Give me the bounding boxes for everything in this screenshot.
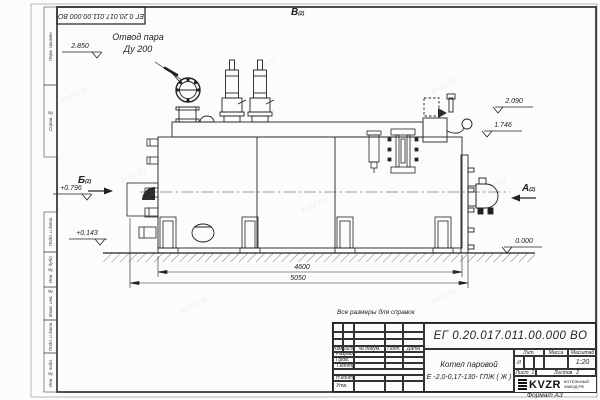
elevation-2850: 2.850 bbox=[60, 43, 100, 51]
format-note: Формат А3 bbox=[527, 392, 563, 399]
tb-lit-cell2 bbox=[524, 356, 534, 369]
tb-row-utv: Утв. bbox=[333, 381, 354, 393]
view-sheet-ref: (2) bbox=[529, 187, 535, 193]
drawing-sheet: kvzr.ru kvzr.ru kvzr.ru kvzr.ru kvzr.ru … bbox=[0, 0, 600, 400]
tb-empty bbox=[354, 381, 385, 393]
rear-flange-and-pump bbox=[461, 155, 498, 253]
dim-5050: 5050 bbox=[276, 275, 320, 283]
side-label-inv-dubl: Инв. № дубл. bbox=[44, 252, 57, 287]
tb-logo: KVZR КОТЕЛЬНЫЙ ЗАВОД РФ bbox=[514, 376, 597, 393]
elevation-0796: +0.796 bbox=[51, 185, 91, 193]
side-label-vzam-inv: Взам. инв. № bbox=[44, 287, 57, 320]
tb-lit-cell3 bbox=[534, 356, 544, 369]
tb-rev-col bbox=[354, 323, 385, 346]
view-label-a: А(2) bbox=[522, 183, 535, 194]
tb-doc-number: ЕГ 0.20.017.011.00.000 ВО bbox=[424, 323, 597, 349]
dome bbox=[200, 116, 214, 122]
safety-valves bbox=[220, 60, 274, 122]
elevation-2090: 2.090 bbox=[496, 98, 532, 106]
side-label-sprav-no: Справ. № bbox=[44, 85, 57, 157]
ground bbox=[103, 253, 535, 262]
tb-empty bbox=[385, 381, 403, 393]
kvzr-logo-text: KVZR bbox=[529, 379, 561, 391]
side-label-podp-data2: Подп. и дата bbox=[44, 320, 57, 353]
steam-outlet-label-line2: Ду 200 bbox=[100, 45, 176, 55]
reference-dimensions-note: Все размеры для справок bbox=[337, 309, 415, 316]
view-arrows bbox=[88, 188, 536, 202]
view-sheet-ref: (2) bbox=[298, 11, 304, 17]
tb-rev-col bbox=[333, 323, 343, 346]
tb-product-name: Котел паровой Е -2,0-0,17-130- ГЛЖ ( Ж ) bbox=[424, 349, 514, 393]
tb-mass-value bbox=[544, 356, 568, 369]
tb-lit-value: И bbox=[514, 356, 524, 369]
tb-sheet-value: 1 bbox=[532, 370, 535, 376]
boiler-body bbox=[158, 98, 462, 248]
manometer bbox=[438, 94, 472, 133]
tb-rev-col bbox=[385, 323, 403, 346]
tb-empty bbox=[403, 381, 424, 393]
side-label-podp-data1: Подп. и дата bbox=[44, 212, 57, 252]
title-block: Изм. Лист № докум. Подп. Дата Разраб. Пр… bbox=[332, 322, 596, 392]
tb-scale-value: 1:20 bbox=[568, 356, 597, 369]
dim-4600: 4600 bbox=[280, 264, 324, 272]
tb-sheets-value: 2 bbox=[576, 370, 579, 376]
front-door bbox=[127, 139, 158, 238]
tb-lit-header: Лит. bbox=[514, 349, 544, 356]
steam-outlet-leader bbox=[155, 62, 182, 80]
tb-rev-col bbox=[403, 323, 424, 346]
kvzr-logo-subtext: КОТЕЛЬНЫЙ ЗАВОД РФ bbox=[564, 380, 589, 390]
kvzr-logo-subtext-line2: ЗАВОД РФ bbox=[564, 385, 589, 390]
view-label-v: В(2) bbox=[291, 7, 304, 18]
elevation-1746: 1.746 bbox=[485, 122, 521, 130]
side-label-inv-podl: Инв. № подл. bbox=[44, 353, 57, 392]
tb-sheet: Лист 1 bbox=[514, 369, 536, 376]
elevation-0000: 0.000 bbox=[505, 238, 543, 246]
tb-rev-line bbox=[333, 331, 424, 333]
steam-valve bbox=[165, 68, 200, 122]
tb-sheets-label: Листов bbox=[554, 370, 572, 376]
top-stamp-doc-number: ЕГ 0.20.017.011.00.000 ВО bbox=[57, 8, 145, 23]
tb-mass-header: Масса bbox=[544, 349, 568, 356]
elevation-0143: +0.143 bbox=[67, 230, 107, 238]
tb-product-line1: Котел паровой bbox=[440, 359, 497, 372]
tb-product-line2: Е -2,0-0,17-130- ГЛЖ ( Ж ) bbox=[427, 372, 512, 383]
tb-scale-header: Масштаб bbox=[568, 349, 597, 356]
tb-sheet-label: Лист bbox=[516, 370, 529, 376]
elevation-marks bbox=[53, 52, 542, 253]
side-label-perv-primen: Перв. примен. bbox=[44, 7, 57, 85]
steam-outlet-label-line1: Отвод пара bbox=[100, 33, 176, 43]
tb-sheets: Листов 2 bbox=[536, 369, 597, 376]
water-gauges bbox=[367, 129, 418, 173]
kvzr-logo-icon bbox=[518, 379, 527, 390]
tb-rev-line bbox=[333, 338, 424, 340]
tb-rev-col bbox=[343, 323, 354, 346]
